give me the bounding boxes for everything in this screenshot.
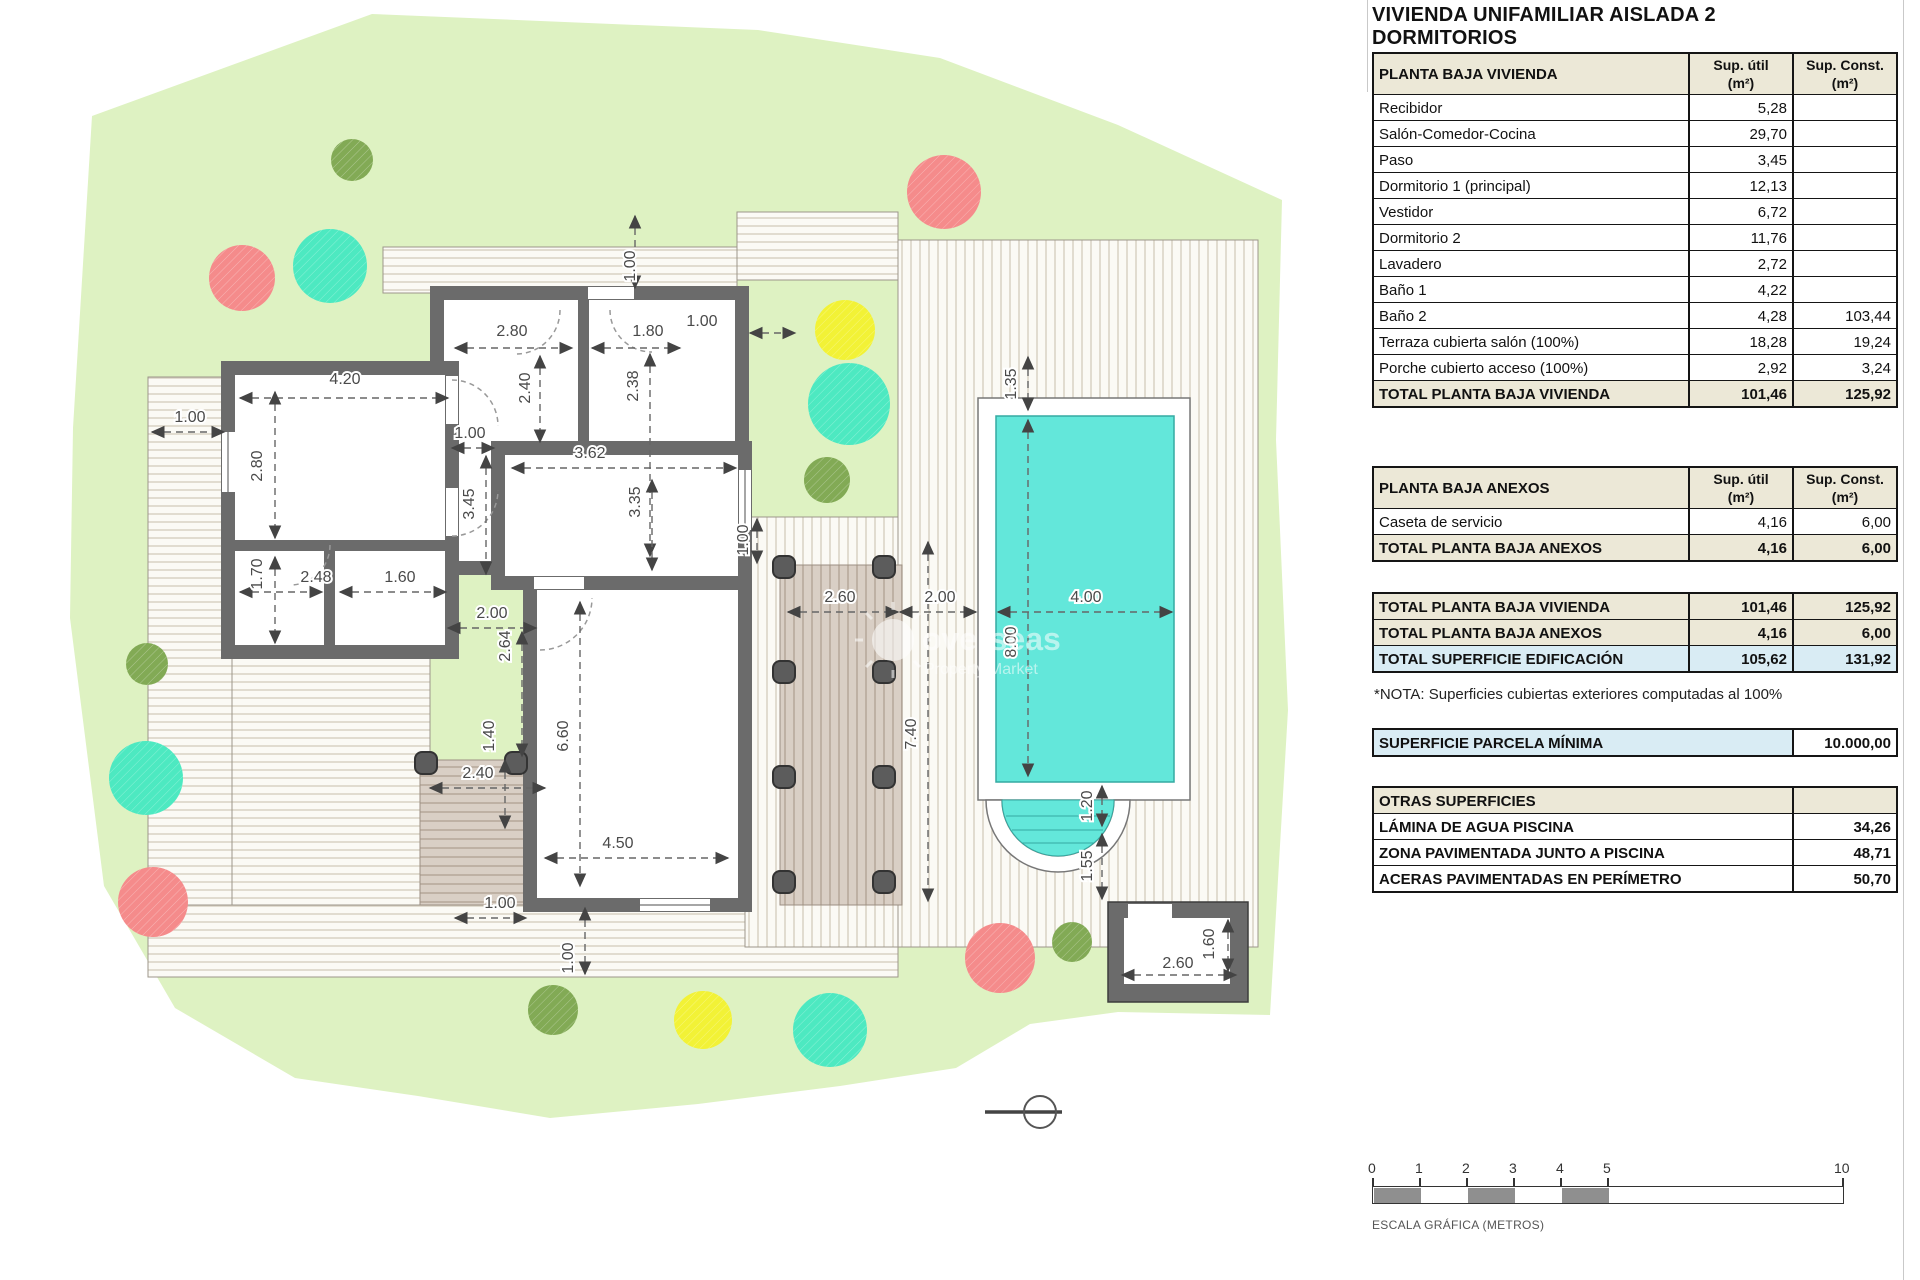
summary-row: TOTAL PLANTA BAJA VIVIENDA 101,46 125,92 <box>1374 594 1896 619</box>
dimension-label: 1.80 <box>632 323 663 340</box>
tree-texture <box>126 643 168 685</box>
dimension-label: 1.00 <box>454 425 485 442</box>
tree-texture <box>965 923 1035 993</box>
tree-texture <box>1052 922 1092 962</box>
scale-caption: ESCALA GRÁFICA (METROS) <box>1372 1218 1544 1232</box>
tree-texture <box>804 457 850 503</box>
summary-row: TOTAL PLANTA BAJA ANEXOS 4,16 6,00 <box>1374 619 1896 645</box>
dimension-label: 1.00 <box>484 895 515 912</box>
table-row: Terraza cubierta salón (100%) 18,28 19,2… <box>1374 328 1896 354</box>
scale-tick-label: 10 <box>1834 1160 1850 1176</box>
otras-row: ACERAS PAVIMENTADAS EN PERÍMETRO 50,70 <box>1374 865 1896 891</box>
table-row: Baño 2 4,28 103,44 <box>1374 302 1896 328</box>
table-totales: TOTAL PLANTA BAJA VIVIENDA 101,46 125,92… <box>1372 592 1898 673</box>
tree-texture <box>674 991 732 1049</box>
dimension-label: 1.00 <box>735 524 752 555</box>
pergola-post <box>773 556 795 578</box>
table-planta-baja-anexos: PLANTA BAJA ANEXOSSup. útil(m²) Sup. Con… <box>1372 466 1898 562</box>
dimension-label: 2.80 <box>496 323 527 340</box>
tree-texture <box>528 985 578 1035</box>
dimension-label: 3.45 <box>461 488 478 519</box>
dimension-label: 1.35 <box>1003 368 1020 399</box>
dimension-label: 4.20 <box>329 371 360 388</box>
tree-texture <box>907 155 981 229</box>
pergola-post <box>873 871 895 893</box>
table-row: Vestidor 6,72 <box>1374 198 1896 224</box>
dimension-label: 2.80 <box>249 450 266 481</box>
dimension-label: 2.60 <box>1162 955 1193 972</box>
pergola-post <box>773 871 795 893</box>
table-planta-baja-vivienda: PLANTA BAJA VIVIENDASup. útil(m²) Sup. C… <box>1372 52 1898 408</box>
floor-plan-sheet: 1.002.801.801.004.201.002.802.402.381.00… <box>0 0 1920 1280</box>
tree-texture <box>293 229 367 303</box>
dimension-label: 3.62 <box>574 445 605 462</box>
scale-tick-label: 5 <box>1603 1160 1611 1176</box>
dimension-label: 2.64 <box>497 630 514 661</box>
scale-tick-label: 3 <box>1509 1160 1517 1176</box>
pergola-post <box>505 752 527 774</box>
table-row: Porche cubierto acceso (100%) 2,92 3,24 <box>1374 354 1896 380</box>
dimension-label: 2.00 <box>476 605 507 622</box>
pergola-post <box>773 766 795 788</box>
pergola-post <box>415 752 437 774</box>
pergola-post <box>873 766 895 788</box>
dimension-label: 1.40 <box>481 720 498 751</box>
tree-texture <box>118 867 188 937</box>
tree-texture <box>815 300 875 360</box>
total-row: TOTAL PLANTA BAJA VIVIENDA 101,46 125,92 <box>1374 380 1896 406</box>
dimension-label: 1.55 <box>1079 850 1096 881</box>
table-row: Dormitorio 1 (principal) 12,13 <box>1374 172 1896 198</box>
table-row: Recibidor 5,28 <box>1374 94 1896 120</box>
col-header-sup-const: Sup. Const.(m²) <box>1792 468 1896 508</box>
scale-tick-label: 0 <box>1368 1160 1376 1176</box>
dimension-label: 1.00 <box>174 409 205 426</box>
dimension-label: 2.40 <box>462 765 493 782</box>
dimension-label: 2.00 <box>924 589 955 606</box>
dimension-label: 1.20 <box>1079 790 1096 821</box>
tree-texture <box>209 245 275 311</box>
dimension-label: 1.00 <box>686 313 717 330</box>
tree-texture <box>109 741 183 815</box>
tree-texture <box>808 363 890 445</box>
dimension-label: 1.00 <box>622 250 639 281</box>
table-row: Dormitorio 2 11,76 <box>1374 224 1896 250</box>
scale-tick-label: 2 <box>1462 1160 1470 1176</box>
col-header-sup-util: Sup. útil(m²) <box>1688 54 1792 94</box>
table-row: Paso 3,45 <box>1374 146 1896 172</box>
table-row: Baño 1 4,22 <box>1374 276 1896 302</box>
table-header: PLANTA BAJA VIVIENDA <box>1374 54 1688 94</box>
pergola-post <box>773 661 795 683</box>
survey-marker-icon <box>985 1096 1062 1128</box>
sheet-divider-line <box>1367 0 1368 92</box>
dimension-label: 6.60 <box>555 720 572 751</box>
table-row: Salón-Comedor-Cocina 29,70 <box>1374 120 1896 146</box>
dimension-label: 4.00 <box>1070 589 1101 606</box>
summary-row: TOTAL SUPERFICIE EDIFICACIÓN 105,62 131,… <box>1374 645 1896 671</box>
dimension-label: 2.60 <box>824 589 855 606</box>
dimension-label: 1.60 <box>384 569 415 586</box>
svg-text:overseas: overseas <box>922 621 1061 657</box>
dimension-label: 2.40 <box>517 372 534 403</box>
col-header-sup-const: Sup. Const.(m²) <box>1792 54 1896 94</box>
scale-tick-label: 1 <box>1415 1160 1423 1176</box>
total-row: TOTAL PLANTA BAJA ANEXOS 4,16 6,00 <box>1374 534 1896 560</box>
site-plan-drawing: 1.002.801.801.004.201.002.802.402.381.00… <box>0 0 1370 1280</box>
svg-text:Property Market: Property Market <box>924 661 1038 678</box>
sheet-border-line <box>1903 0 1904 1280</box>
table-parcela-minima: SUPERFICIE PARCELA MÍNIMA 10.000,00 <box>1372 728 1898 757</box>
otras-row: LÁMINA DE AGUA PISCINA 34,26 <box>1374 813 1896 839</box>
scale-tick-label: 4 <box>1556 1160 1564 1176</box>
pergola-terrace <box>780 565 902 905</box>
service-hut <box>1108 902 1248 1002</box>
dimension-label: 4.50 <box>602 835 633 852</box>
table-header: PLANTA BAJA ANEXOS <box>1374 468 1688 508</box>
otras-header: OTRAS SUPERFICIES <box>1374 788 1896 813</box>
otras-row: ZONA PAVIMENTADA JUNTO A PISCINA 48,71 <box>1374 839 1896 865</box>
nota-text: *NOTA: Superficies cubiertas exteriores … <box>1374 686 1782 703</box>
dimension-label: 3.35 <box>627 486 644 517</box>
dimension-label: 1.60 <box>1201 928 1218 959</box>
table-otras-superficies: OTRAS SUPERFICIES LÁMINA DE AGUA PISCINA… <box>1372 786 1898 893</box>
pergola-post <box>873 556 895 578</box>
dimension-label: 1.70 <box>249 558 266 589</box>
dimension-label: 1.00 <box>560 942 577 973</box>
col-header-sup-util: Sup. útil(m²) <box>1688 468 1792 508</box>
dimension-label: 2.38 <box>625 370 642 401</box>
parcela-row: SUPERFICIE PARCELA MÍNIMA 10.000,00 <box>1374 730 1896 755</box>
table-row: Lavadero 2,72 <box>1374 250 1896 276</box>
table-row: Caseta de servicio 4,16 6,00 <box>1374 508 1896 534</box>
dimension-label: 7.40 <box>903 718 920 749</box>
tree-texture <box>793 993 867 1067</box>
tree-texture <box>331 139 373 181</box>
dimension-label: 2.48 <box>300 569 331 586</box>
